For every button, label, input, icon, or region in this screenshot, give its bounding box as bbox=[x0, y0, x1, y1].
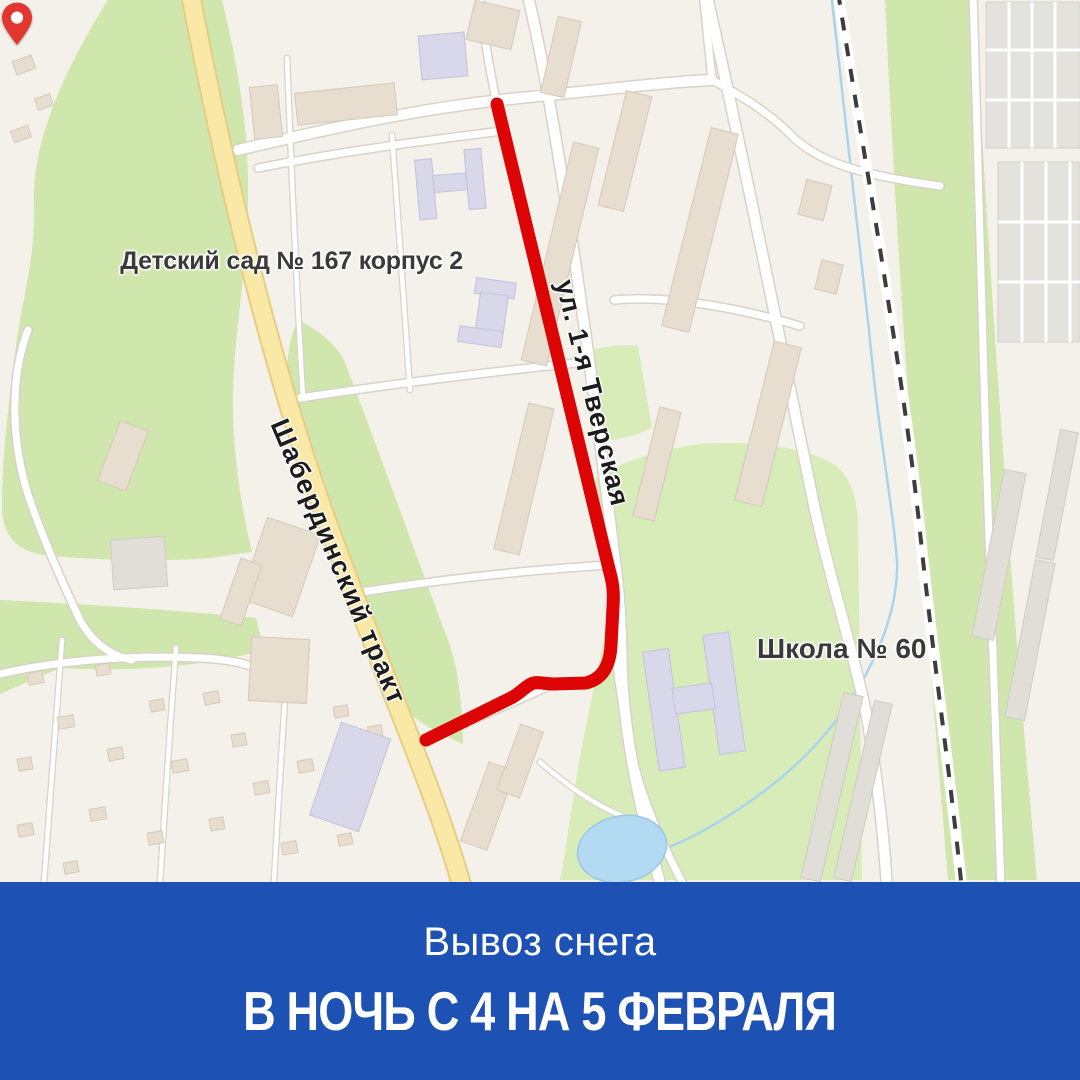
map-canvas: Детский сад № 167 корпус 2 Школа № 60 Ша… bbox=[0, 0, 1080, 882]
label-school: Школа № 60 bbox=[757, 633, 926, 665]
garage-grid bbox=[986, 2, 1080, 342]
school-pin-icon bbox=[0, 0, 34, 48]
label-kindergarten: Детский сад № 167 корпус 2 bbox=[120, 247, 463, 276]
banner-title: В НОЧЬ С 4 НА 5 ФЕВРАЛЯ bbox=[244, 979, 837, 1043]
banner: Вывоз снега В НОЧЬ С 4 НА 5 ФЕВРАЛЯ bbox=[0, 882, 1080, 1080]
snow-removal-poster: Детский сад № 167 корпус 2 Школа № 60 Ша… bbox=[0, 0, 1080, 1080]
banner-subtitle: Вывоз снега bbox=[423, 920, 656, 965]
map-graphic bbox=[0, 0, 1080, 882]
